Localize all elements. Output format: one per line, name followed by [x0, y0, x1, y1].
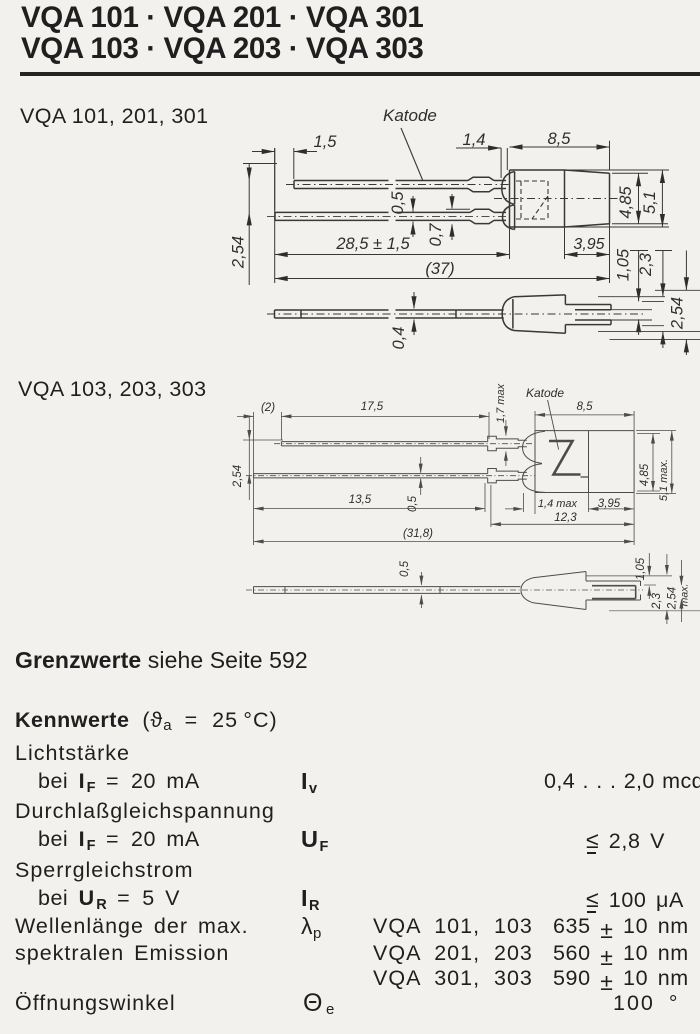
- svg-text:2,3: 2,3: [651, 592, 663, 610]
- svg-text:2,54: 2,54: [669, 297, 687, 330]
- svg-text:4,85: 4,85: [617, 186, 635, 219]
- svg-text:max.: max.: [679, 584, 691, 607]
- svg-text:Katode: Katode: [526, 386, 564, 400]
- svg-text:3,95: 3,95: [573, 236, 604, 253]
- svg-text:Katode: Katode: [383, 106, 437, 125]
- svg-text:0,5: 0,5: [399, 560, 411, 577]
- svg-text:0,7: 0,7: [427, 223, 445, 247]
- svg-text:28,5 ± 1,5: 28,5 ± 1,5: [335, 235, 410, 253]
- svg-text:12,3: 12,3: [554, 512, 577, 524]
- svg-text:0,5: 0,5: [407, 495, 419, 512]
- svg-text:0,5: 0,5: [389, 191, 407, 215]
- svg-text:2,54: 2,54: [667, 587, 679, 610]
- svg-text:(2): (2): [261, 402, 275, 414]
- svg-text:2,54: 2,54: [230, 236, 248, 269]
- svg-text:8,5: 8,5: [548, 130, 572, 148]
- svg-text:17,5: 17,5: [361, 401, 384, 413]
- svg-text:3,95: 3,95: [598, 498, 621, 510]
- svg-text:2,3: 2,3: [637, 252, 655, 277]
- svg-text:(37): (37): [425, 260, 454, 278]
- svg-text:5,1: 5,1: [641, 191, 659, 214]
- svg-text:1,5: 1,5: [314, 133, 338, 151]
- svg-text:(31,8): (31,8): [403, 528, 433, 540]
- svg-text:4,85: 4,85: [639, 463, 651, 486]
- svg-text:1,7 max: 1,7 max: [495, 383, 507, 423]
- svg-text:8,5: 8,5: [577, 401, 594, 413]
- svg-text:2,54: 2,54: [232, 465, 244, 488]
- svg-text:1,4: 1,4: [463, 131, 486, 149]
- svg-text:1,05: 1,05: [615, 248, 633, 281]
- svg-text:1,05: 1,05: [635, 557, 647, 580]
- svg-text:5,1 max.: 5,1 max.: [658, 459, 670, 501]
- svg-text:0,4: 0,4: [390, 327, 408, 350]
- svg-text:13,5: 13,5: [349, 494, 372, 506]
- svg-text:1,4 max: 1,4 max: [538, 498, 578, 510]
